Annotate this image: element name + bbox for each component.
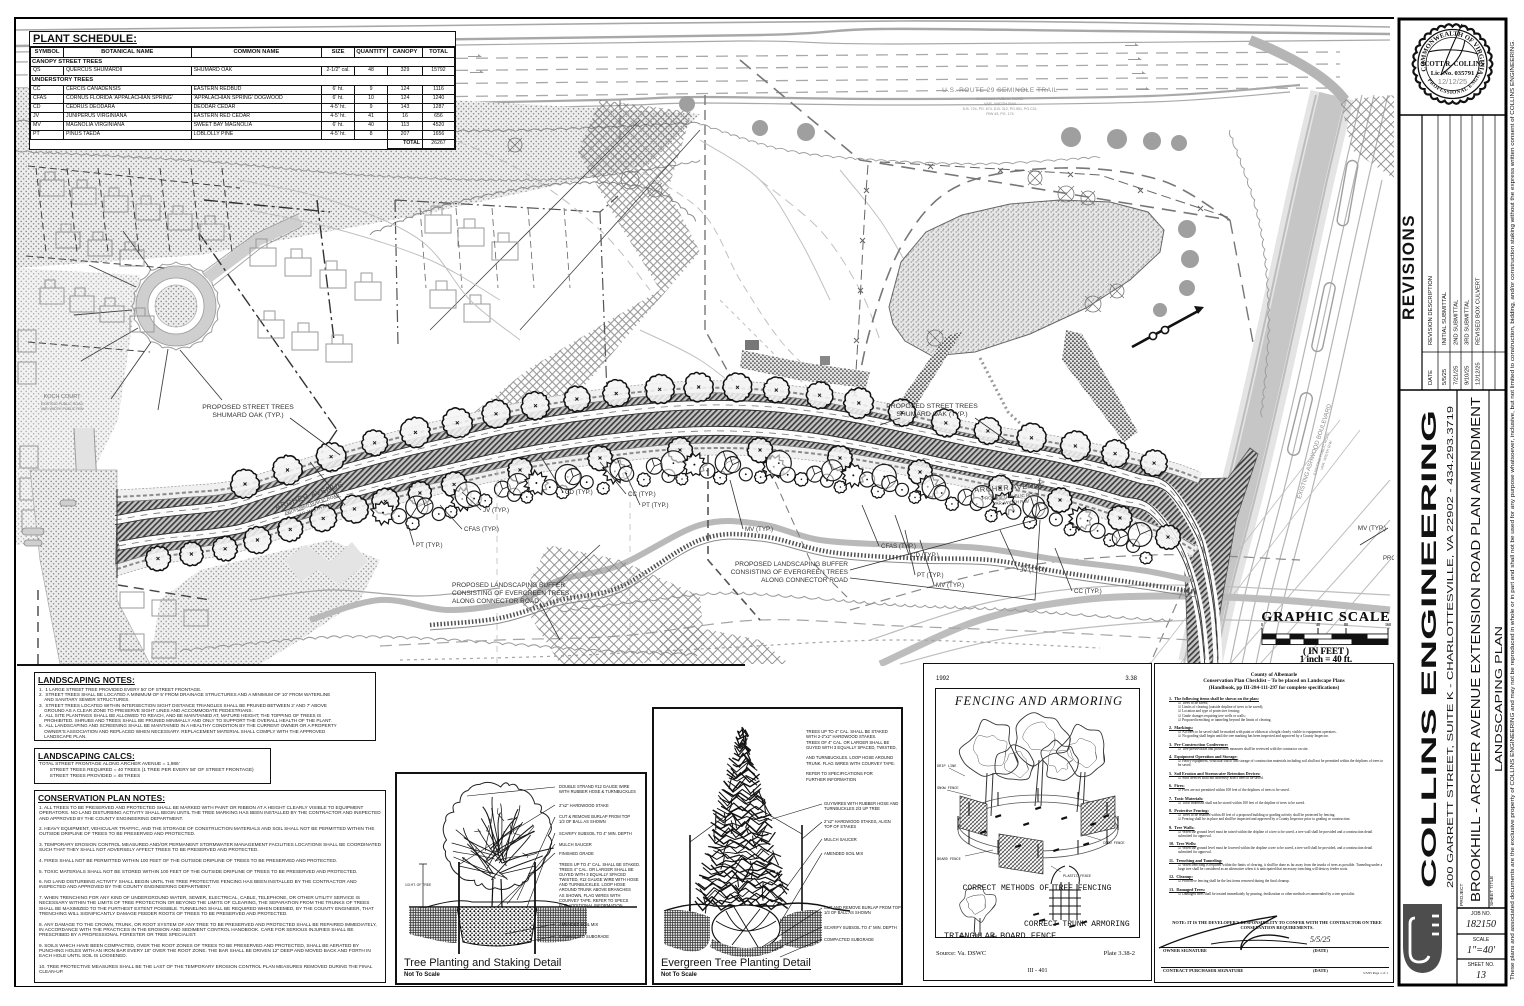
- svg-text:CFAS (TYP.): CFAS (TYP.): [881, 543, 916, 550]
- svg-text:SHEET TITLE: SHEET TITLE: [1489, 876, 1495, 906]
- svg-text:12/12/25: 12/12/25: [1438, 77, 1468, 86]
- svg-text:PROJECT: PROJECT: [1459, 884, 1465, 906]
- svg-text:REVISIONS: REVISIONS: [1399, 214, 1418, 320]
- svg-text:GRAPHIC SCALE: GRAPHIC SCALE: [1261, 610, 1390, 625]
- svg-text:PROPOSED LANDSCAPING BUFFER: PROPOSED LANDSCAPING BUFFER: [735, 561, 848, 568]
- svg-text:CORD FENCE: CORD FENCE: [1103, 842, 1125, 846]
- svg-text:PROPOSED STREET TREES: PROPOSED STREET TREES: [886, 403, 978, 410]
- svg-text:7/21/25: 7/21/25: [1454, 366, 1460, 385]
- svg-text:CC (TYP.): CC (TYP.): [628, 491, 656, 498]
- svg-text:CONSISTING OF EVERGREEN TREES: CONSISTING OF EVERGREEN TREES: [452, 590, 570, 597]
- svg-text:JV (TYP.): JV (TYP.): [1020, 567, 1046, 574]
- svg-text:182150: 182150: [1466, 919, 1496, 930]
- svg-text:CD (TYP.): CD (TYP.): [565, 489, 593, 496]
- svg-text:13: 13: [1476, 970, 1486, 981]
- svg-text:0: 0: [1261, 622, 1263, 627]
- svg-text:D.B. 724, PG. 674, D.B. 312, P: D.B. 724, PG. 674, D.B. 312, PG.551, PG.…: [963, 107, 1038, 111]
- svg-text:REVISED BOX CULVERT: REVISED BOX CULVERT: [1476, 277, 1482, 345]
- svg-text:200 GARRETT STREET, SUITE K -: 200 GARRETT STREET, SUITE K - CHARLOTTES…: [1445, 405, 1455, 888]
- svg-text:These plans and associated doc: These plans and associated documents are…: [1510, 40, 1516, 980]
- svg-text:BROOKHILL - ARCHER AVENUE EXTE: BROOKHILL - ARCHER AVENUE EXTENSION ROAD…: [1468, 397, 1483, 902]
- svg-text:160: 160: [1385, 622, 1391, 627]
- svg-text:SHUMARD OAK (TYP.): SHUMARD OAK (TYP.): [896, 411, 967, 418]
- svg-text:R/W #3, PG. 174: R/W #3, PG. 174: [986, 112, 1013, 116]
- svg-text:PROPOSED LANDSCAPING BUFFER: PROPOSED LANDSCAPING BUFFER: [452, 582, 565, 589]
- svg-text:12/12/25: 12/12/25: [1476, 362, 1482, 385]
- svg-text:EXISTING PUBLIC ROAD: EXISTING PUBLIC ROAD: [41, 402, 84, 406]
- svg-text:Lic. No. 035791: Lic. No. 035791: [1431, 70, 1475, 77]
- svg-text:CORRECT METHODS OF TREE FENCIN: CORRECT METHODS OF TREE FENCING: [963, 884, 1112, 893]
- svg-text:ALONG CONNECTOR ROAD: ALONG CONNECTOR ROAD: [452, 598, 539, 605]
- svg-text:CFAS (TYP.): CFAS (TYP.): [464, 526, 499, 533]
- svg-text:JOB NO.: JOB NO.: [1471, 911, 1491, 917]
- svg-text:CONSISTING OF EVERGREEN TREES: CONSISTING OF EVERGREEN TREES: [731, 569, 849, 576]
- svg-text:PROPOSED STREET TREES: PROPOSED STREET TREES: [202, 404, 294, 411]
- svg-text:80: 80: [1344, 622, 1348, 627]
- svg-text:SHUMARD OAK (TYP.): SHUMARD OAK (TYP.): [212, 412, 283, 419]
- svg-text:REVISION DESCRIPTION: REVISION DESCRIPTION: [1428, 276, 1434, 345]
- svg-text:JV (TYP.): JV (TYP.): [483, 507, 509, 514]
- svg-text:DATE: DATE: [1428, 370, 1434, 385]
- svg-text:3RD SUBMITTAL: 3RD SUBMITTAL: [1465, 299, 1471, 345]
- svg-text:40: 40: [1316, 622, 1320, 627]
- svg-text:ALONG CONNECTOR ROAD: ALONG CONNECTOR ROAD: [761, 577, 848, 584]
- svg-text:DRIP LINE: DRIP LINE: [937, 765, 956, 769]
- svg-text:PT (TYP.): PT (TYP.): [416, 542, 443, 549]
- svg-text:5/5/25: 5/5/25: [1442, 369, 1448, 385]
- svg-text:2ND SUBMITTAL: 2ND SUBMITTAL: [1454, 299, 1460, 345]
- svg-text:PLASTIC FENCE: PLASTIC FENCE: [1063, 875, 1091, 879]
- svg-text:1/3 HT. OF TREE: 1/3 HT. OF TREE: [405, 883, 432, 887]
- svg-text:PT (TYP.): PT (TYP.): [642, 502, 669, 509]
- svg-text:BOARD FENCE: BOARD FENCE: [937, 858, 961, 862]
- svg-text:KOCH COURT: KOCH COURT: [44, 394, 82, 400]
- svg-text:1"=40': 1"=40': [1467, 945, 1496, 956]
- svg-text:LANDSCAPING PLAN: LANDSCAPING PLAN: [1493, 626, 1505, 772]
- svg-text:SHEET NO.: SHEET NO.: [1468, 962, 1495, 968]
- svg-text:COLLINS ENGINEERING: COLLINS ENGINEERING: [1418, 410, 1441, 888]
- svg-text:U.S. ROUTE 29 SEMINOLE TRAIL: U.S. ROUTE 29 SEMINOLE TRAIL: [942, 87, 1058, 94]
- svg-text:MV (TYP.): MV (TYP.): [745, 526, 773, 533]
- svg-text:MV (TYP.): MV (TYP.): [1358, 525, 1386, 532]
- svg-text:SNOW FENCE: SNOW FENCE: [937, 787, 959, 791]
- svg-text:VAR. WIDTH R/W: VAR. WIDTH R/W: [984, 101, 1016, 106]
- svg-text:INITIAL SUBMITTAL: INITIAL SUBMITTAL: [1442, 291, 1448, 345]
- svg-text:MV (TYP.): MV (TYP.): [936, 582, 964, 589]
- svg-text:CC (TYP.): CC (TYP.): [1074, 588, 1102, 595]
- svg-text:SCALE: SCALE: [1473, 937, 1490, 943]
- svg-text:VAR. WIDTH PUBLIC R/W: VAR. WIDTH PUBLIC R/W: [41, 407, 84, 411]
- svg-text:9/10/25: 9/10/25: [1465, 366, 1471, 385]
